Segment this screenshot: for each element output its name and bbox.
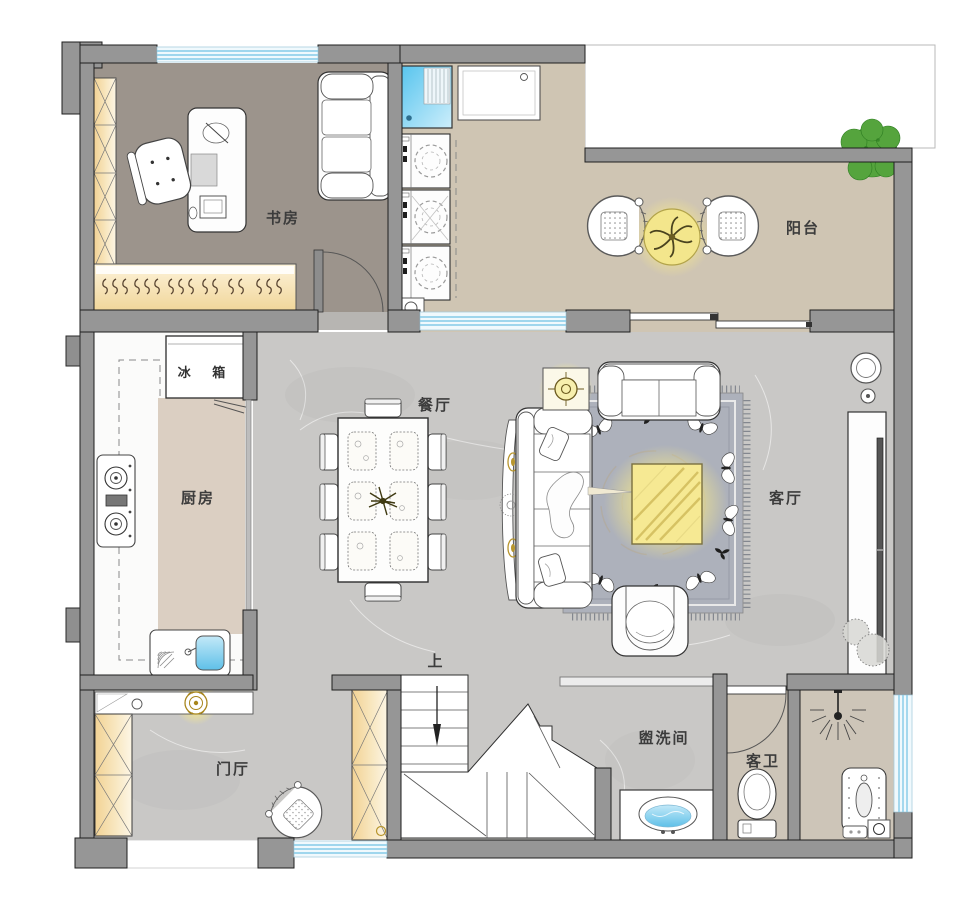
washroom-opening-header xyxy=(560,677,713,686)
bath-floor-drain xyxy=(868,820,890,838)
washing-machines xyxy=(400,134,456,300)
room-label-balcony: 阳台 xyxy=(786,219,820,237)
gas-stove xyxy=(97,455,135,547)
dining-chair xyxy=(320,484,338,520)
room-label-living: 客厅 xyxy=(768,489,803,507)
dining-chair xyxy=(428,434,446,470)
study-sofa xyxy=(318,72,392,200)
dining-chair xyxy=(428,484,446,520)
stairs-up-label: 上 xyxy=(427,653,444,670)
dining-chair xyxy=(428,534,446,570)
coffee-table xyxy=(632,464,702,544)
entry-door-glazing xyxy=(294,841,387,857)
bath-window xyxy=(894,695,912,812)
room-label-kitchen: 厨房 xyxy=(181,489,215,507)
vanity-basin xyxy=(620,790,718,840)
dining-chair xyxy=(365,399,401,417)
floor-plan: 书房 阳 xyxy=(0,0,960,909)
door-leaf xyxy=(314,250,323,312)
kitchen-sink xyxy=(150,630,230,676)
room-label-foyer: 门厅 xyxy=(216,760,250,778)
mop-sink xyxy=(400,66,452,128)
kitchen-sliding-door xyxy=(246,400,251,610)
lamp-side-table xyxy=(543,368,589,410)
door-threshold xyxy=(318,312,390,330)
balcony-window xyxy=(420,312,566,330)
stair-side-wall xyxy=(595,768,611,840)
dining-chair xyxy=(320,434,338,470)
room-label-study: 书房 xyxy=(266,209,300,227)
sofa-2-seat xyxy=(598,362,720,420)
floor-plan-canvas: 书房 阳 xyxy=(0,0,960,909)
study-window xyxy=(157,47,318,62)
coat-hanger-rack xyxy=(94,264,296,312)
foyer-wardrobe-left xyxy=(95,714,132,836)
laundry-sink xyxy=(458,66,540,120)
room-label-washroom: 盥洗间 xyxy=(638,729,689,747)
shoe-console xyxy=(95,692,253,714)
kitchen-floor xyxy=(158,398,245,634)
dining-chair xyxy=(320,534,338,570)
dining-chair xyxy=(365,583,401,601)
toilet xyxy=(738,769,776,838)
fridge-label: 冰 箱 xyxy=(178,365,235,380)
room-label-guest-bath: 客卫 xyxy=(745,752,780,770)
room-label-dining: 餐厅 xyxy=(418,396,452,414)
dining-table xyxy=(338,418,428,582)
door-leaf xyxy=(727,686,786,694)
foyer-wardrobe-right xyxy=(352,690,388,840)
armchair xyxy=(612,586,688,656)
soap-box xyxy=(843,826,867,838)
round-tea-table xyxy=(644,209,700,265)
desk xyxy=(188,108,246,232)
study-side-wardrobe xyxy=(94,78,116,268)
